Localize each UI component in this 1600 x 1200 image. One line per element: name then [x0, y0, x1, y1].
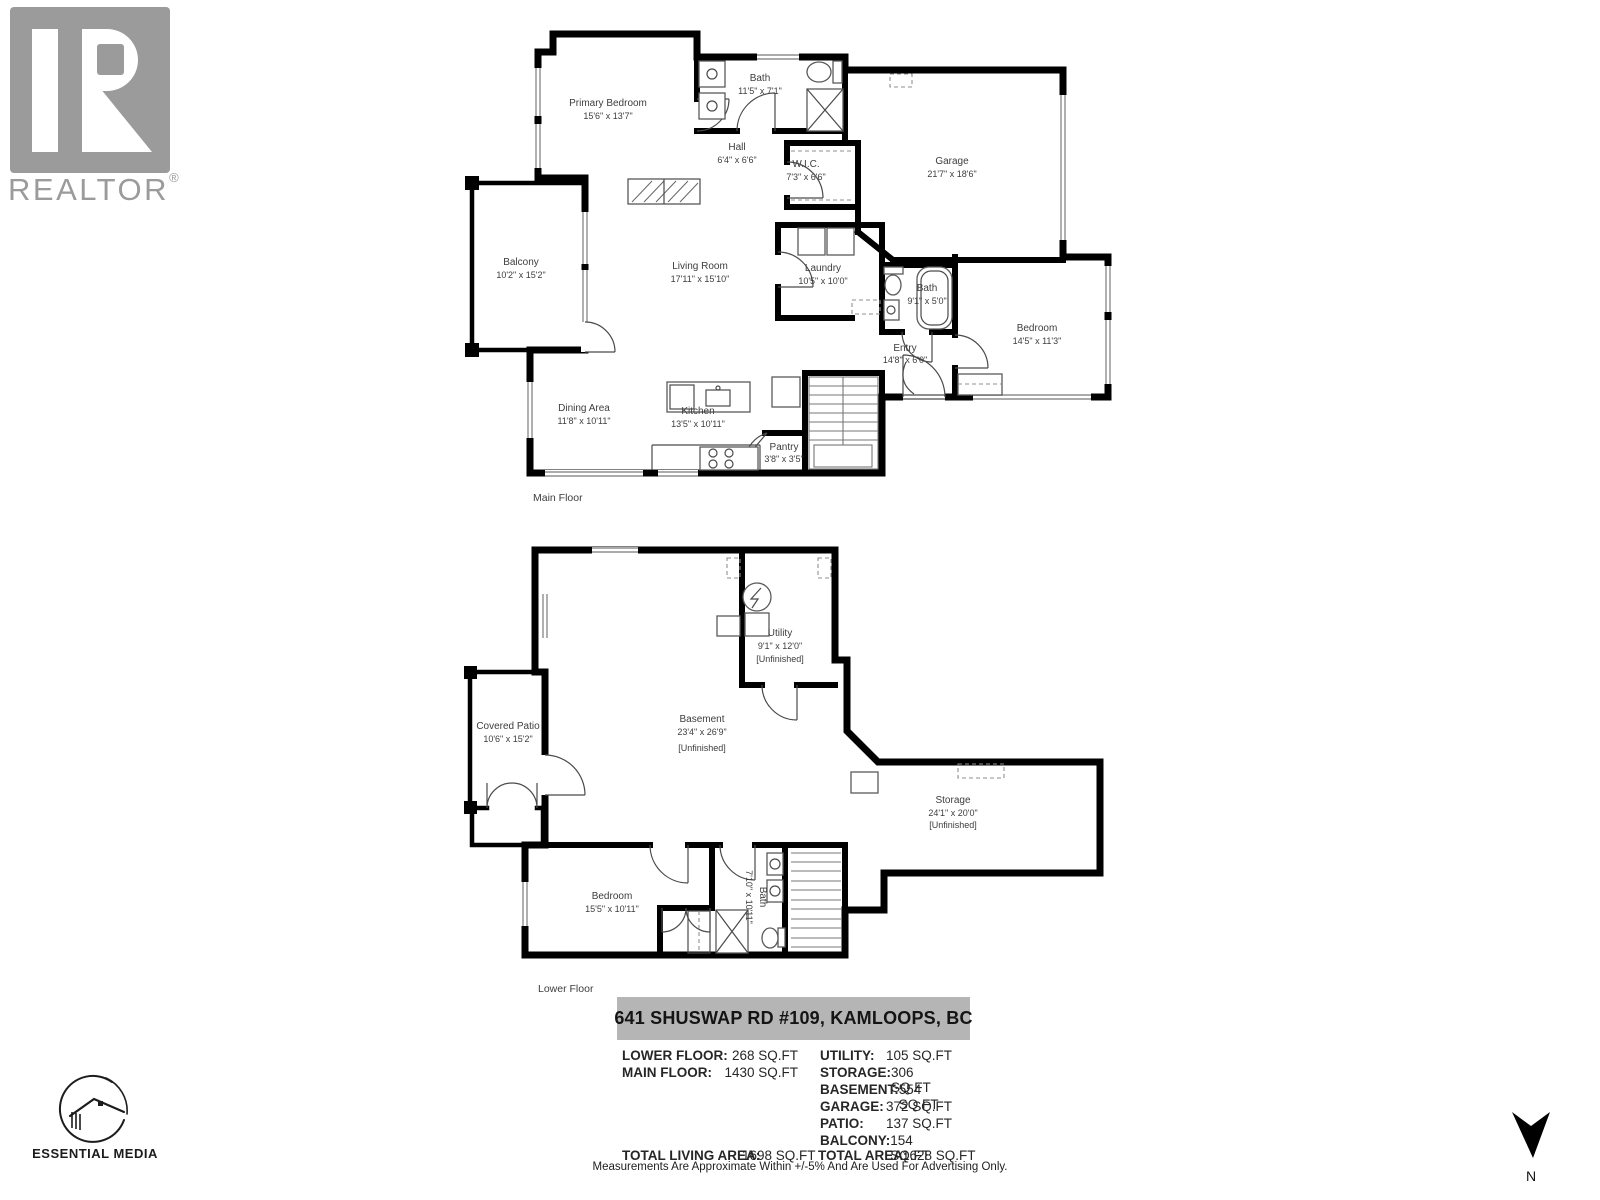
- lower-patio-structure: [464, 666, 543, 845]
- room-label: Basement: [679, 714, 724, 725]
- room-dims: 24'1" x 20'0": [928, 808, 977, 818]
- room-label: Garage: [935, 156, 969, 167]
- garage-vent: [890, 74, 912, 87]
- room-label: Living Room: [672, 261, 728, 272]
- room-label: Bath: [917, 283, 938, 294]
- lower-floor-caption: Lower Floor: [538, 983, 593, 995]
- fridge-icon: [772, 377, 800, 407]
- area-label: MAIN FLOOR:: [622, 1065, 712, 1080]
- area-value: 137 SQ.FT: [886, 1116, 952, 1131]
- area-label: UTILITY:: [820, 1048, 875, 1063]
- room-note: [Unfinished]: [756, 654, 804, 664]
- room-dims: 13'5" x 10'11": [671, 419, 725, 429]
- room-dims: 15'6" x 13'7": [583, 111, 632, 121]
- room-dims: 3'8" x 3'5": [764, 454, 803, 464]
- room-dims: 14'5" x 11'3": [1013, 336, 1062, 346]
- area-value: 1430 SQ.FT: [724, 1065, 798, 1080]
- main-floor-plan: Primary Bedroom 15'6" x 13'7" Bath 11'5"…: [440, 15, 1130, 480]
- media-credit: ESSENTIAL MEDIA: [20, 1146, 170, 1161]
- main-stairs: [809, 377, 878, 469]
- main-bedroom-closet: [958, 374, 1002, 395]
- room-dims: 14'8" x 6'0": [883, 355, 927, 365]
- room-label: Bath: [757, 887, 768, 908]
- room-label: Bedroom: [592, 891, 633, 902]
- electrical-panel-icon: [743, 583, 771, 611]
- lower-room-labels: Utility 9'1" x 12'0" [Unfinished] Covere…: [476, 628, 977, 924]
- main-hatch-feature: [628, 179, 700, 204]
- area-row: GARAGE: 372 SQ.FT: [820, 1099, 952, 1114]
- room-dims: 7'10" x 10'11": [744, 870, 754, 924]
- lower-storage-details: [851, 764, 1004, 793]
- north-label: N: [1526, 1168, 1536, 1184]
- room-dims: 10'2" x 15'2": [496, 270, 545, 280]
- room-note: [Unfinished]: [678, 743, 726, 753]
- room-label: Covered Patio: [476, 721, 540, 732]
- room-dims: 11'8" x 10'11": [557, 416, 610, 426]
- area-label: PATIO:: [820, 1116, 864, 1131]
- room-dims: 10'5" x 10'0": [798, 276, 847, 286]
- room-label: Dining Area: [558, 403, 610, 414]
- room-label: Hall: [728, 142, 745, 153]
- lower-stairs: [791, 853, 841, 947]
- lower-windows: [521, 547, 638, 926]
- lower-bath-fixtures: [688, 853, 785, 953]
- house-roof-icon: [70, 1099, 124, 1130]
- realtor-wordmark: REALTOR®: [8, 170, 208, 208]
- lower-floor-plan: Utility 9'1" x 12'0" [Unfinished] Covere…: [450, 530, 1110, 970]
- room-label: Pantry: [770, 442, 799, 453]
- room-dims: 17'11" x 15'10": [671, 274, 730, 284]
- room-label: Kitchen: [681, 406, 714, 417]
- room-label: Primary Bedroom: [569, 98, 647, 109]
- room-dims: 21'7" x 18'6": [927, 169, 976, 179]
- registered-trademark-icon: ®: [169, 170, 179, 185]
- room-label: Utility: [768, 628, 792, 639]
- room-dims: 15'5" x 10'11": [585, 904, 639, 914]
- area-value: 105 SQ.FT: [886, 1048, 952, 1063]
- main-floor-caption: Main Floor: [533, 492, 583, 504]
- room-label: Balcony: [503, 257, 539, 268]
- area-label: GARAGE:: [820, 1099, 884, 1114]
- area-row: UTILITY: 105 SQ.FT: [820, 1048, 952, 1063]
- address-banner: 641 SHUSWAP RD #109, KAMLOOPS, BC: [617, 997, 970, 1040]
- property-address: 641 SHUSWAP RD #109, KAMLOOPS, BC: [614, 1008, 972, 1029]
- room-dims: 9'1" x 12'0": [758, 641, 802, 651]
- room-dims: 10'6" x 15'2": [483, 734, 532, 744]
- area-label: LOWER FLOOR:: [622, 1048, 728, 1063]
- room-dims: 11'5" x 7'1": [738, 86, 782, 96]
- room-label: Laundry: [805, 263, 841, 274]
- room-label: Bedroom: [1017, 323, 1058, 334]
- area-row: LOWER FLOOR: 268 SQ.FT: [622, 1048, 798, 1063]
- area-value: 372 SQ.FT: [886, 1099, 952, 1114]
- room-dims: 23'4" x 26'9": [677, 727, 726, 737]
- area-row: PATIO: 137 SQ.FT: [820, 1116, 952, 1131]
- area-value: 268 SQ.FT: [732, 1048, 798, 1063]
- room-label: Entry: [893, 343, 916, 354]
- room-dims: 7'3" x 6'6": [786, 172, 825, 182]
- room-label: W.I.C.: [792, 159, 819, 170]
- realtor-logo: [10, 7, 170, 173]
- room-dims: 6'4" x 6'6": [717, 155, 756, 165]
- floor-plan-sheet: REALTOR®: [0, 0, 1600, 1200]
- area-row: MAIN FLOOR: 1430 SQ.FT: [622, 1065, 798, 1080]
- north-compass: N: [1500, 1105, 1562, 1187]
- room-label: Bath: [750, 73, 771, 84]
- room-dims: 9'1" x 5'0": [907, 296, 946, 306]
- essential-media-logo: [50, 1072, 140, 1144]
- lower-utility-fixtures: [717, 558, 831, 636]
- measurement-disclaimer: Measurements Are Approximate Within +/-5…: [550, 1161, 1050, 1173]
- room-label: Storage: [935, 795, 970, 806]
- north-arrow-icon: [1512, 1112, 1550, 1158]
- room-note: [Unfinished]: [929, 820, 977, 830]
